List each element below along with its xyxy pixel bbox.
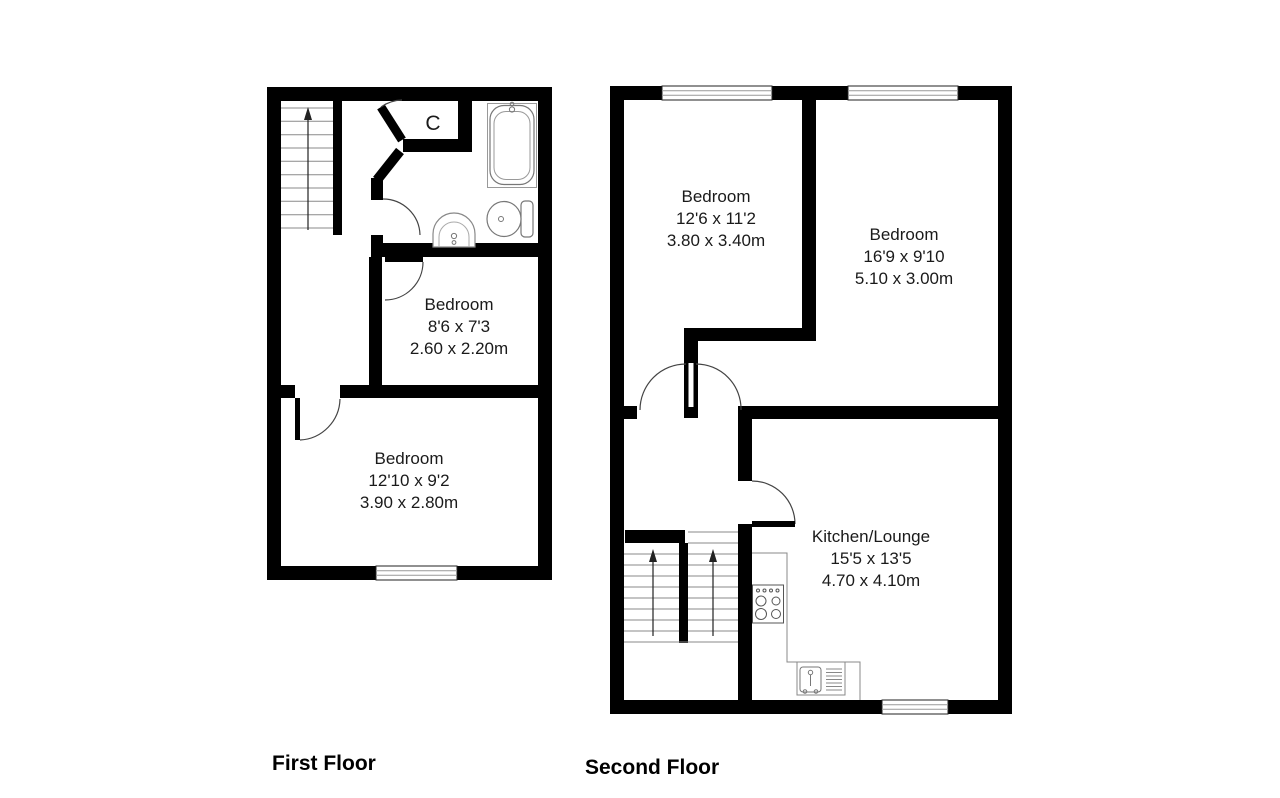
stairs-up-arrow-icon [304,107,312,230]
bathroom-sink-icon [433,213,475,247]
stairs-icon [281,108,333,228]
angled-wall [377,151,400,180]
room-name: Bedroom [360,448,458,470]
floorplan-drawing [0,0,1280,798]
closet-label: C [425,112,440,136]
room-name: Bedroom [410,294,508,316]
room-size-metric: 2.60 x 2.20m [410,338,508,360]
room-size-metric: 3.80 x 3.40m [667,230,765,252]
room-label: Bedroom 12'6 x 11'2 3.80 x 3.40m [667,186,765,252]
door-leaf [385,257,423,262]
room-size-imperial: 12'10 x 9'2 [360,470,458,492]
room-size-metric: 5.10 x 3.00m [855,268,953,290]
room-label: Bedroom 12'10 x 9'2 3.90 x 2.80m [360,448,458,514]
room-size-metric: 4.70 x 4.10m [812,570,930,592]
second-floor-title: Second Floor [585,756,719,780]
closet-door-icon [381,100,402,140]
door-leaf [295,398,300,440]
room-label: Bedroom 16'9 x 9'10 5.10 x 3.00m [855,224,953,290]
window [376,566,457,580]
door-swing-arcs [640,364,795,524]
room-label: Bedroom 8'6 x 7'3 2.60 x 2.20m [410,294,508,360]
first-floor-title: First Floor [272,752,376,776]
second-floor-plan [610,86,1012,714]
door-swing-arcs [300,199,423,440]
window [662,86,772,100]
room-name: Bedroom [667,186,765,208]
window [882,700,948,714]
floorplan-canvas: C Bedroom 8'6 x 7'3 2.60 x 2.20m Bedroom… [0,0,1280,798]
toilet-icon [487,201,533,237]
door-leaf [752,521,795,527]
room-size-imperial: 16'9 x 9'10 [855,246,953,268]
room-size-imperial: 15'5 x 13'5 [812,548,930,570]
room-size-metric: 3.90 x 2.80m [360,492,458,514]
room-name: Bedroom [855,224,953,246]
door-leaf-gap [689,363,694,407]
room-size-imperial: 12'6 x 11'2 [667,208,765,230]
stove-icon [753,585,784,623]
bathtub-icon [488,102,537,187]
room-size-imperial: 8'6 x 7'3 [410,316,508,338]
window [848,86,958,100]
room-label: Kitchen/Lounge 15'5 x 13'5 4.70 x 4.10m [812,526,930,592]
room-name: Kitchen/Lounge [812,526,930,548]
kitchen-sink-icon [797,662,845,695]
